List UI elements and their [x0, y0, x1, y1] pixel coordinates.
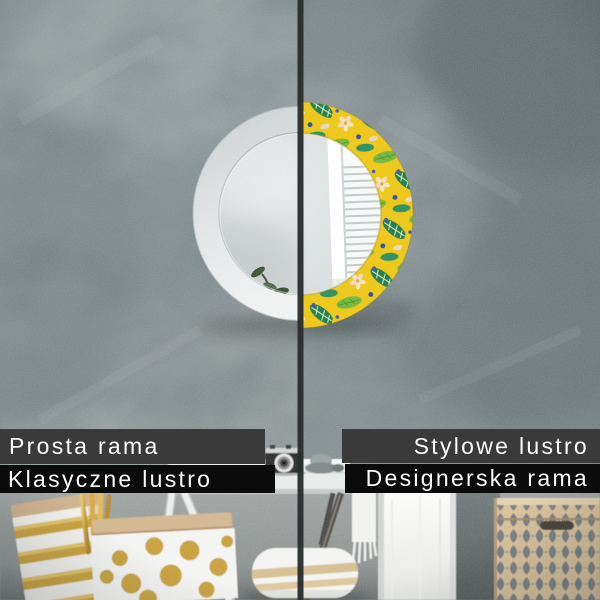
caption-left-bottom-label: Klasyczne lustro	[8, 468, 212, 491]
divider-line	[298, 0, 304, 600]
scene-illustration	[0, 0, 600, 600]
caption-left-top: Prosta rama	[0, 429, 265, 464]
caption-right-bottom: Designerska rama	[345, 464, 600, 493]
caption-right-bottom-label: Designerska rama	[366, 467, 589, 490]
caption-left-top-label: Prosta rama	[9, 435, 160, 458]
caption-left-bottom: Klasyczne lustro	[0, 465, 275, 493]
caption-right-top: Stylowe lustro	[342, 429, 600, 463]
caption-right-top-label: Stylowe lustro	[414, 435, 589, 458]
product-comparison-photo: Prosta rama Klasyczne lustro Stylowe lus…	[0, 0, 600, 600]
